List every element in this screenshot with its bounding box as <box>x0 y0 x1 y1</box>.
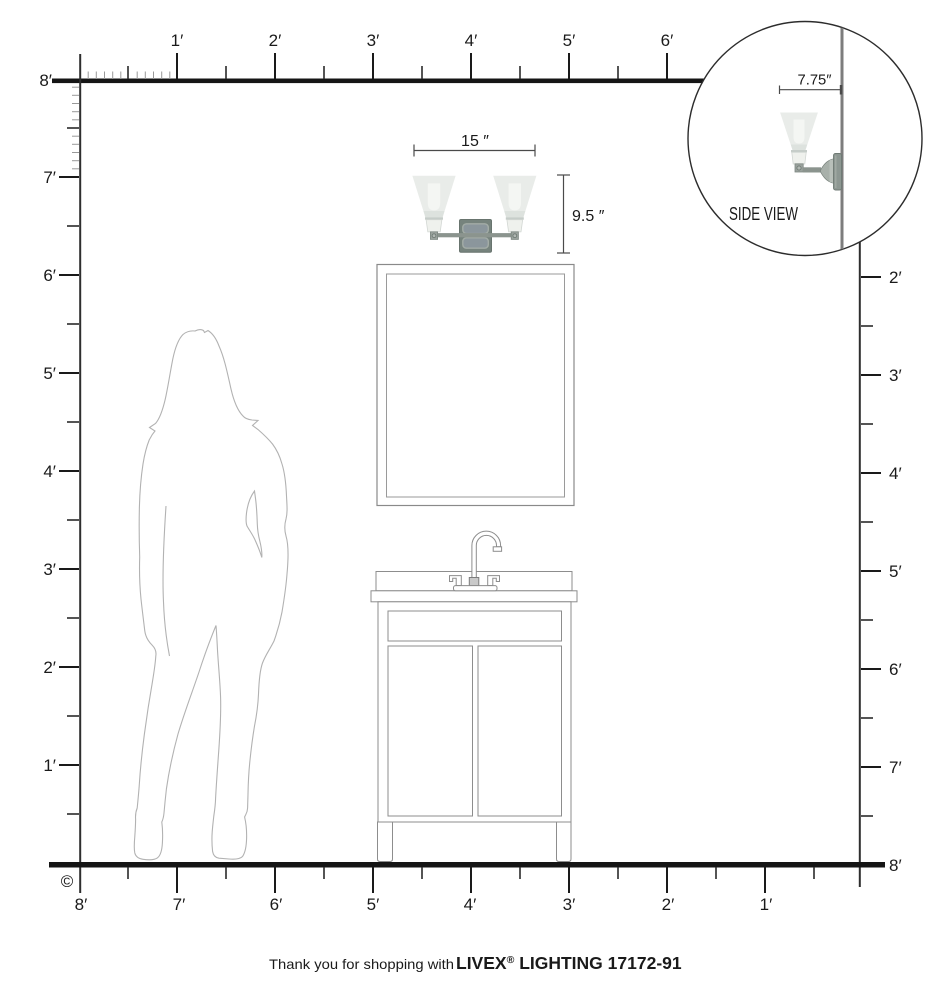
svg-text:3′: 3′ <box>43 560 56 579</box>
svg-text:8′: 8′ <box>39 71 52 90</box>
svg-text:4′: 4′ <box>889 464 902 483</box>
svg-text:6′: 6′ <box>661 31 674 50</box>
svg-text:1′: 1′ <box>43 756 56 775</box>
svg-text:6′: 6′ <box>270 895 283 914</box>
svg-text:©: © <box>61 872 74 891</box>
svg-text:6′: 6′ <box>889 660 902 679</box>
svg-text:LIVEX® LIGHTING 17172-91: LIVEX® LIGHTING 17172-91 <box>456 953 682 973</box>
svg-text:4′: 4′ <box>465 31 478 50</box>
svg-text:5′: 5′ <box>367 895 380 914</box>
svg-text:6′: 6′ <box>43 266 56 285</box>
svg-text:1′: 1′ <box>760 895 773 914</box>
svg-text:2′: 2′ <box>269 31 282 50</box>
svg-text:3′: 3′ <box>563 895 576 914</box>
svg-text:7′: 7′ <box>43 168 56 187</box>
svg-text:2′: 2′ <box>43 658 56 677</box>
svg-text:5′: 5′ <box>43 364 56 383</box>
svg-text:7′: 7′ <box>889 758 902 777</box>
svg-text:2′: 2′ <box>662 895 675 914</box>
svg-text:2′: 2′ <box>889 268 902 287</box>
svg-text:Thank you for shopping with: Thank you for shopping with <box>269 956 454 972</box>
svg-text:7.75″: 7.75″ <box>798 72 833 89</box>
svg-text:1′: 1′ <box>171 31 184 50</box>
svg-text:8′: 8′ <box>889 856 902 875</box>
svg-text:15 ″: 15 ″ <box>461 133 489 150</box>
svg-text:7′: 7′ <box>173 895 186 914</box>
svg-text:5′: 5′ <box>563 31 576 50</box>
svg-text:SIDE VIEW: SIDE VIEW <box>729 204 798 224</box>
svg-text:3′: 3′ <box>889 366 902 385</box>
svg-text:9.5 ″: 9.5 ″ <box>572 208 605 225</box>
svg-text:4′: 4′ <box>464 895 477 914</box>
svg-text:5′: 5′ <box>889 562 902 581</box>
svg-text:3′: 3′ <box>367 31 380 50</box>
svg-text:4′: 4′ <box>43 462 56 481</box>
svg-text:8′: 8′ <box>75 895 88 914</box>
